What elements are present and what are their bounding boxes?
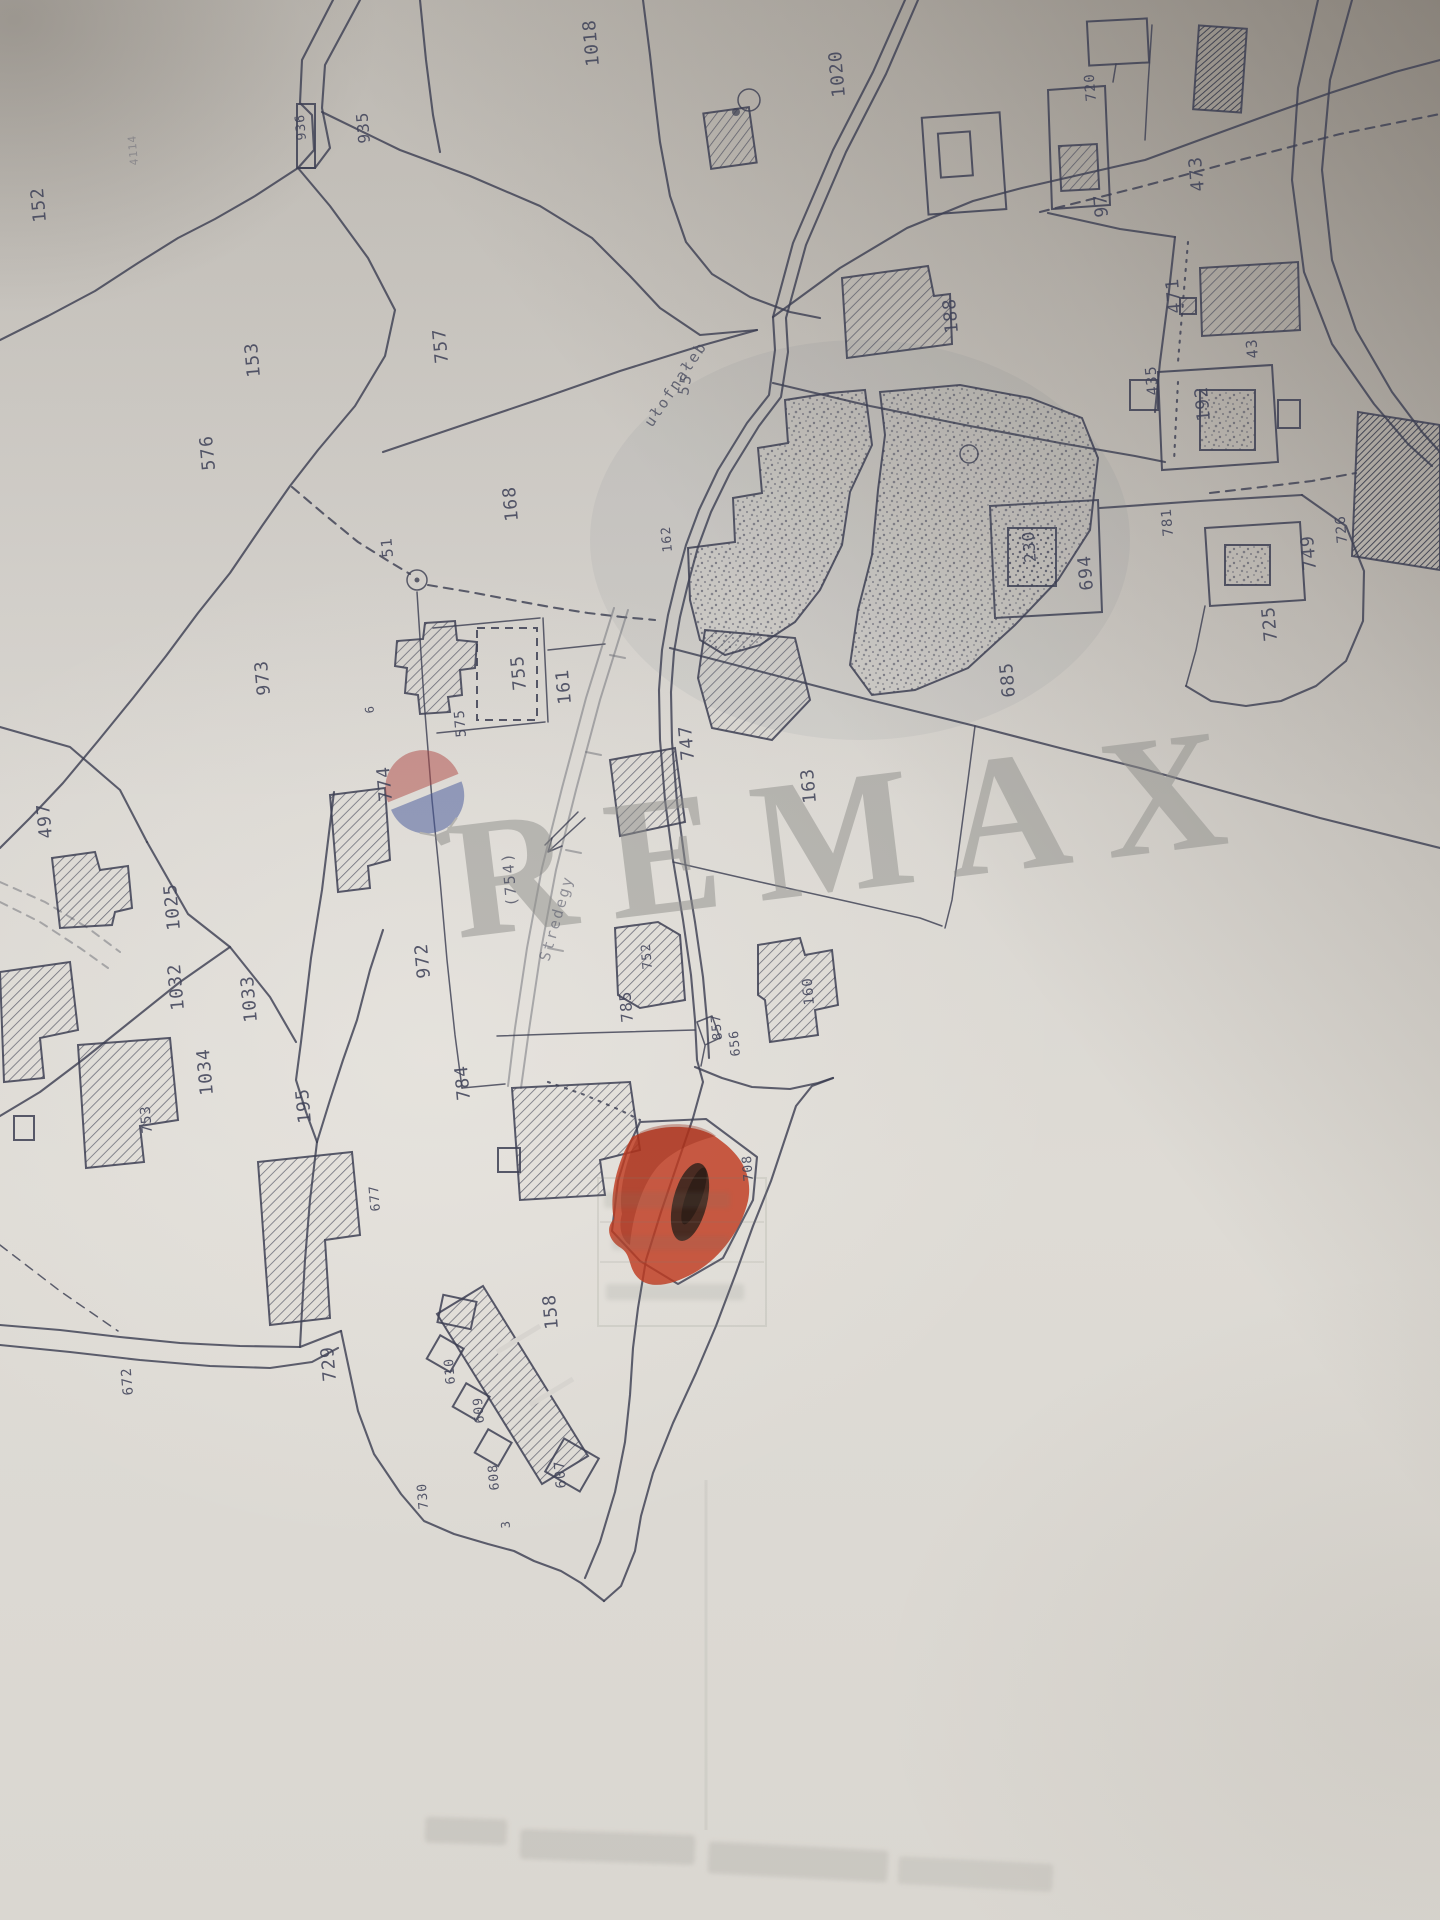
parcel-label-230: 230 xyxy=(1018,530,1040,563)
rect-shape xyxy=(612,1236,730,1250)
parcel-label-972: 972 xyxy=(411,942,435,979)
parcel-label-163: 163 xyxy=(797,767,821,804)
road-edge xyxy=(1292,0,1432,466)
parcel-label-153: 153 xyxy=(241,341,265,378)
parcel-label-4114: 4114 xyxy=(125,134,141,166)
parcel-label-781: 781 xyxy=(1159,507,1177,537)
parcel-label-609: 609 xyxy=(471,1396,488,1424)
parcel-label-188: 188 xyxy=(939,297,963,334)
parcel-label-973: 973 xyxy=(251,659,275,696)
parcel-label-608: 608 xyxy=(486,1463,503,1491)
building-outline xyxy=(14,1116,34,1140)
parcel-label-685: 685 xyxy=(996,661,1020,698)
parcel-label-1020: 1020 xyxy=(825,49,850,98)
parcel-label-720: 720 xyxy=(1082,72,1100,102)
parcel-label-162: 162 xyxy=(659,525,676,553)
boundary xyxy=(543,618,548,722)
building xyxy=(758,938,838,1042)
building xyxy=(52,852,132,928)
parcel-label-1032: 1032 xyxy=(164,962,189,1011)
road-edge xyxy=(0,1345,338,1368)
rect-shape xyxy=(1278,400,1300,428)
rect-shape xyxy=(897,1856,1053,1892)
parcel-label-936: 936 xyxy=(293,113,310,141)
boundary-dashed xyxy=(292,487,410,574)
parcel-label-497: 497 xyxy=(33,802,57,839)
boundary xyxy=(701,1046,705,1066)
bleed-through xyxy=(425,1178,1054,1892)
road-edge xyxy=(0,1325,341,1347)
building xyxy=(258,1152,360,1325)
parcel-label-576: 576 xyxy=(196,434,220,471)
boundary-dashed xyxy=(0,1245,118,1331)
rect-shape xyxy=(938,131,973,177)
road-edge xyxy=(1322,0,1440,452)
parcel-label-708: 708 xyxy=(740,1154,757,1182)
parcel-label-43: 43 xyxy=(1242,338,1262,360)
parcel-label-752: 752 xyxy=(639,942,656,970)
parcel-label-785: 785 xyxy=(615,990,637,1023)
parcel-label-672: 672 xyxy=(119,1366,137,1396)
boundary xyxy=(1186,606,1205,686)
parcel-label-435: 435 xyxy=(1141,365,1162,397)
parcel-label-677: 677 xyxy=(367,1184,384,1212)
parcel-label-97: 97 xyxy=(1090,193,1113,218)
rect-shape xyxy=(1059,144,1099,191)
parcel-label-158: 158 xyxy=(539,1293,563,1330)
parcel-label-161: 161 xyxy=(552,668,576,705)
parcel-label-610: 610 xyxy=(442,1357,459,1385)
building-row xyxy=(427,1286,599,1491)
parcel-label-730: 730 xyxy=(415,1482,432,1510)
rect-shape xyxy=(425,1817,508,1846)
parcel-label-1018: 1018 xyxy=(579,18,604,67)
boundary xyxy=(548,644,605,650)
map-photo: REMAX 1524114936935101810201537571685157… xyxy=(0,0,1440,1920)
parcel-label-725: 725 xyxy=(1258,605,1282,642)
building-outline xyxy=(1048,86,1110,209)
building-dark xyxy=(1352,412,1440,570)
parcel-label-51: 51 xyxy=(377,537,397,559)
parcel-label-192: 192 xyxy=(1191,385,1215,422)
building-outline xyxy=(1205,522,1305,606)
parcel-label-694: 694 xyxy=(1074,554,1098,591)
boundary xyxy=(317,930,383,1142)
boundary xyxy=(322,112,757,335)
boundary xyxy=(497,1030,695,1036)
boundary xyxy=(420,0,440,152)
parcel-label-471: 471 xyxy=(1162,277,1186,314)
parcel-label-656: 656 xyxy=(727,1029,744,1057)
parcel-label-195: 195 xyxy=(292,1087,316,1124)
building xyxy=(1200,262,1300,336)
boundary xyxy=(298,0,360,168)
parcel-label-757: 757 xyxy=(429,327,453,364)
pencil-tick xyxy=(586,752,601,755)
parcel-label-747: 747 xyxy=(675,724,699,761)
building xyxy=(395,621,477,714)
parcel-label-1033: 1033 xyxy=(237,974,262,1023)
parcel-label-160: 160 xyxy=(800,976,818,1006)
building xyxy=(78,1038,178,1168)
rect-shape xyxy=(475,1429,512,1466)
street-label: 55 xyxy=(674,372,696,397)
boundary-dashed xyxy=(1210,473,1356,493)
parcel-label-473: 473 xyxy=(1185,155,1209,192)
rect-shape xyxy=(520,1829,696,1865)
line-shape xyxy=(1113,64,1116,82)
survey-dot xyxy=(415,578,420,583)
boundary-dotted xyxy=(1174,382,1178,462)
parcel-label-168: 168 xyxy=(499,485,523,522)
building xyxy=(0,962,78,1082)
parcel-label-935: 935 xyxy=(352,111,374,144)
building-outline xyxy=(922,112,1007,214)
parcel-label-755: 755 xyxy=(507,654,531,691)
parcel-label-1034: 1034 xyxy=(193,1047,218,1096)
parcel-label-607: 607 xyxy=(552,1459,570,1489)
parcel-label-729: 729 xyxy=(317,1345,341,1382)
building xyxy=(330,788,390,892)
parcel-label-726: 726 xyxy=(1333,514,1351,544)
parcel-label-1025: 1025 xyxy=(160,882,185,931)
parcel-label-784: 784 xyxy=(451,1064,475,1101)
parcel-label-749: 749 xyxy=(1297,534,1321,571)
rect-shape xyxy=(922,112,1007,214)
rect-shape xyxy=(606,1284,744,1300)
parcel-label-857: 857 xyxy=(709,1013,726,1041)
rect-shape xyxy=(1225,545,1270,585)
parcel-label-575: 575 xyxy=(452,708,470,738)
rect-shape xyxy=(707,1841,888,1882)
building-outline xyxy=(1087,18,1149,65)
boundary xyxy=(0,168,395,848)
building xyxy=(703,107,756,169)
parcel-label-152: 152 xyxy=(27,186,51,223)
parcel-label-753: 753 xyxy=(138,1104,156,1134)
parcel-label-6: 6 xyxy=(362,705,377,714)
rect-shape xyxy=(604,1192,730,1208)
building-dark xyxy=(1193,25,1247,112)
parcel-label-3: 3 xyxy=(498,1520,513,1529)
boundary xyxy=(1100,495,1302,508)
parcel-label-774: 774 xyxy=(373,765,397,802)
cadastral-map: REMAX 1524114936935101810201537571685157… xyxy=(0,0,1440,1920)
